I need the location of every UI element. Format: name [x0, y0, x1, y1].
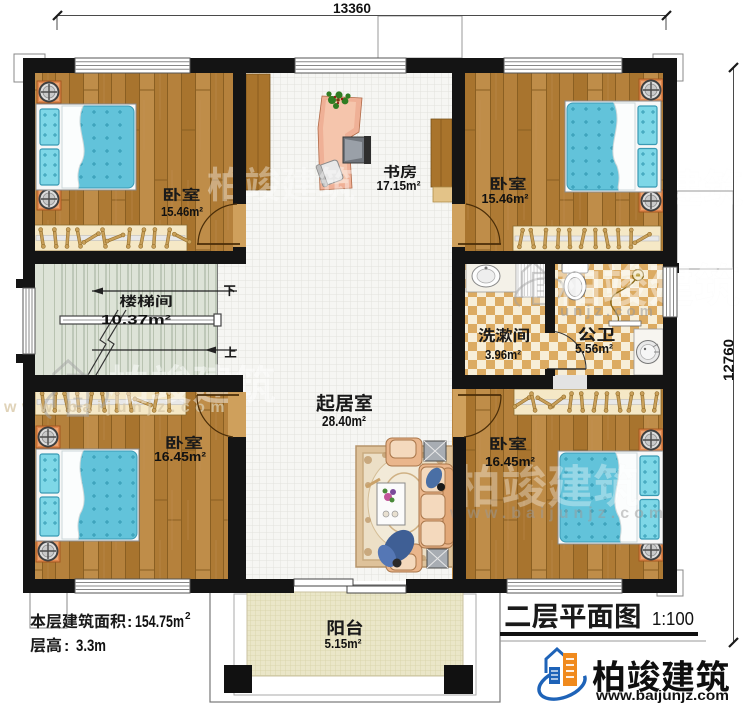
svg-text:5.15m²: 5.15m²	[325, 636, 363, 651]
svg-text:3.3m: 3.3m	[76, 636, 106, 655]
svg-text:10.37m²: 10.37m²	[101, 312, 172, 327]
svg-text:www.baijunjz.com: www.baijunjz.com	[3, 399, 230, 416]
svg-text:2: 2	[185, 611, 191, 622]
svg-text:3.96m²: 3.96m²	[485, 347, 522, 362]
svg-text:16.45m²: 16.45m²	[154, 449, 207, 464]
svg-text:5.56m²: 5.56m²	[575, 341, 614, 356]
svg-text:16.45m²: 16.45m²	[485, 454, 536, 469]
svg-text:www.baijunjz.com: www.baijunjz.com	[449, 505, 668, 522]
svg-text:www.baijunjz.com: www.baijunjz.com	[595, 688, 729, 703]
svg-text::: :	[127, 614, 132, 631]
svg-text:unjz.com: unjz.com	[560, 303, 657, 320]
svg-text::: :	[64, 638, 69, 655]
svg-text:28.40m²: 28.40m²	[322, 414, 366, 430]
svg-text:12760: 12760	[722, 339, 738, 381]
svg-text:154.75m: 154.75m	[135, 612, 184, 631]
svg-text:1:100: 1:100	[652, 608, 694, 629]
svg-text:15.46m²: 15.46m²	[482, 191, 530, 206]
svg-text:15.46m²: 15.46m²	[161, 204, 204, 219]
svg-text:17.15m²: 17.15m²	[377, 178, 422, 193]
svg-text:13360: 13360	[333, 1, 371, 16]
